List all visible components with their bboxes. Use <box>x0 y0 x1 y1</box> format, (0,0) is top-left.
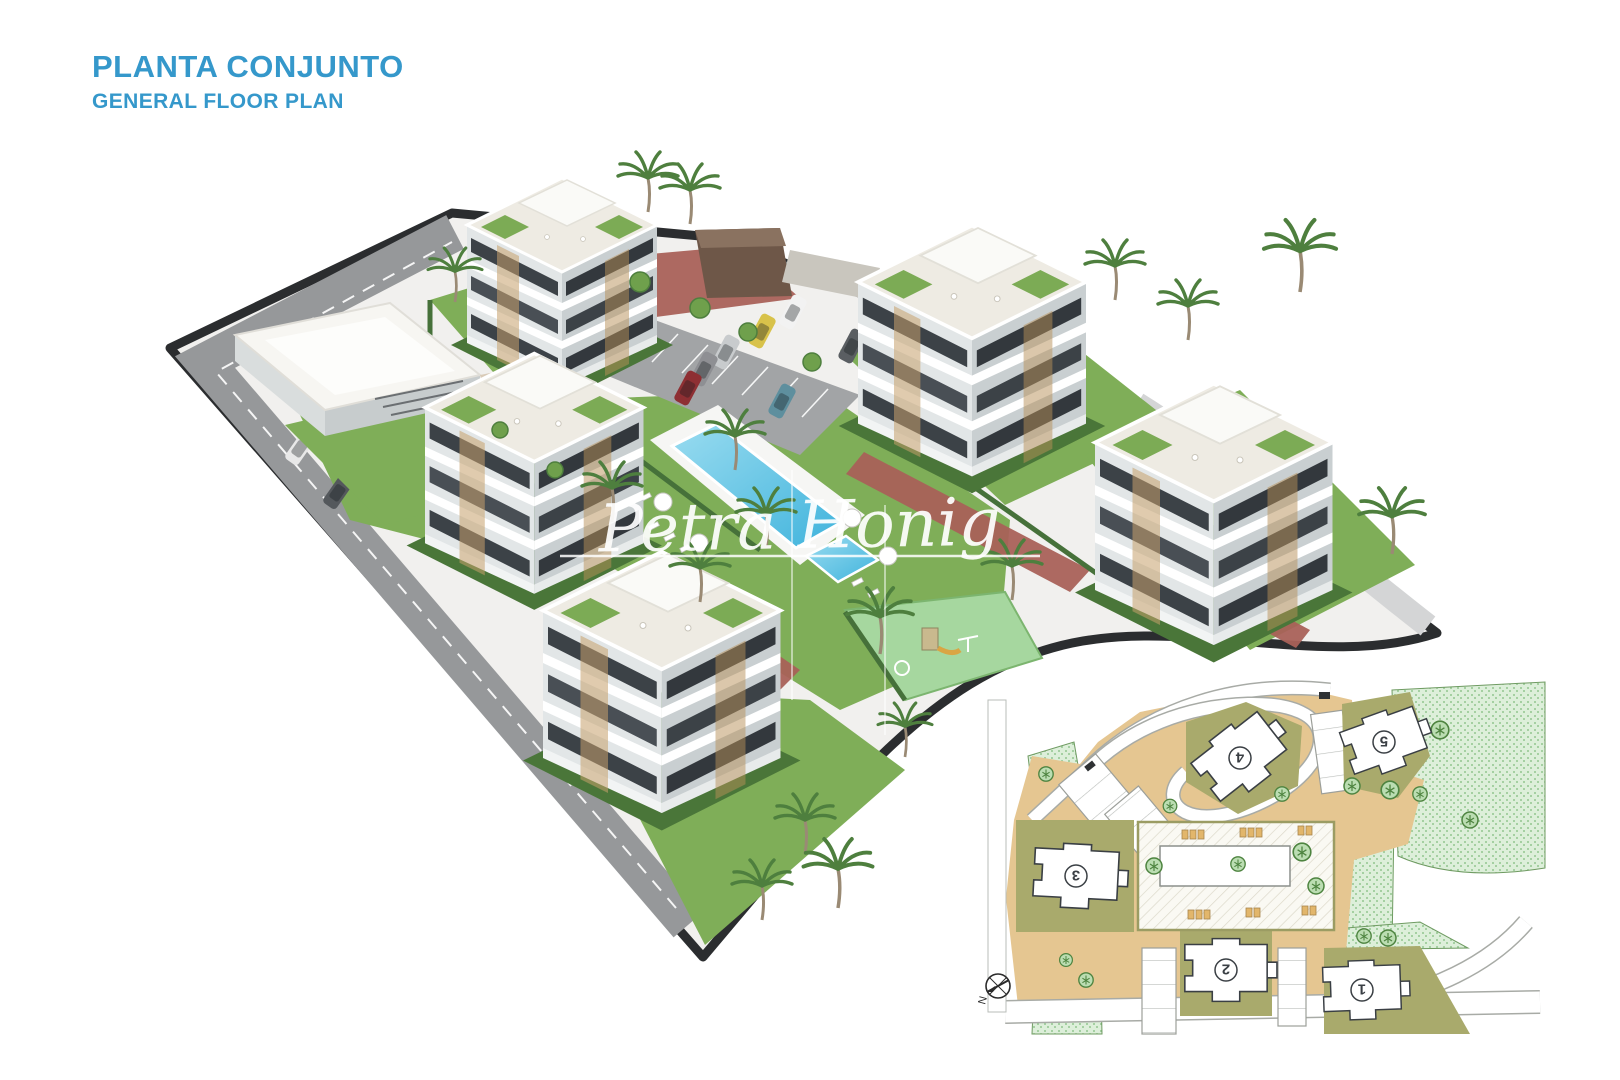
page: PLANTA CONJUNTO GENERAL FLOOR PLAN <box>0 0 1620 1080</box>
entrance-structure <box>695 228 880 300</box>
plan-building-4-number: 4 <box>1235 749 1244 766</box>
plan-building-1-number: 1 <box>1358 981 1366 998</box>
palm-tree-icon <box>618 152 678 212</box>
plan-building-3-number: 3 <box>1072 867 1080 884</box>
plan-building-2-number: 2 <box>1222 961 1230 978</box>
site-render-canvas: Petra Honig <box>0 0 1620 1080</box>
watermark-text: Petra Honig <box>597 484 1001 568</box>
inset-site-plan: 4 5 3 2 1 <box>976 682 1545 1034</box>
palm-tree-icon <box>1264 220 1336 292</box>
plan-building-5-number: 5 <box>1380 733 1388 750</box>
plan-amenity-area <box>1138 822 1334 930</box>
palm-tree-icon <box>1158 280 1218 340</box>
palm-tree-icon <box>1085 240 1145 300</box>
plan-car-icon <box>1319 692 1330 699</box>
